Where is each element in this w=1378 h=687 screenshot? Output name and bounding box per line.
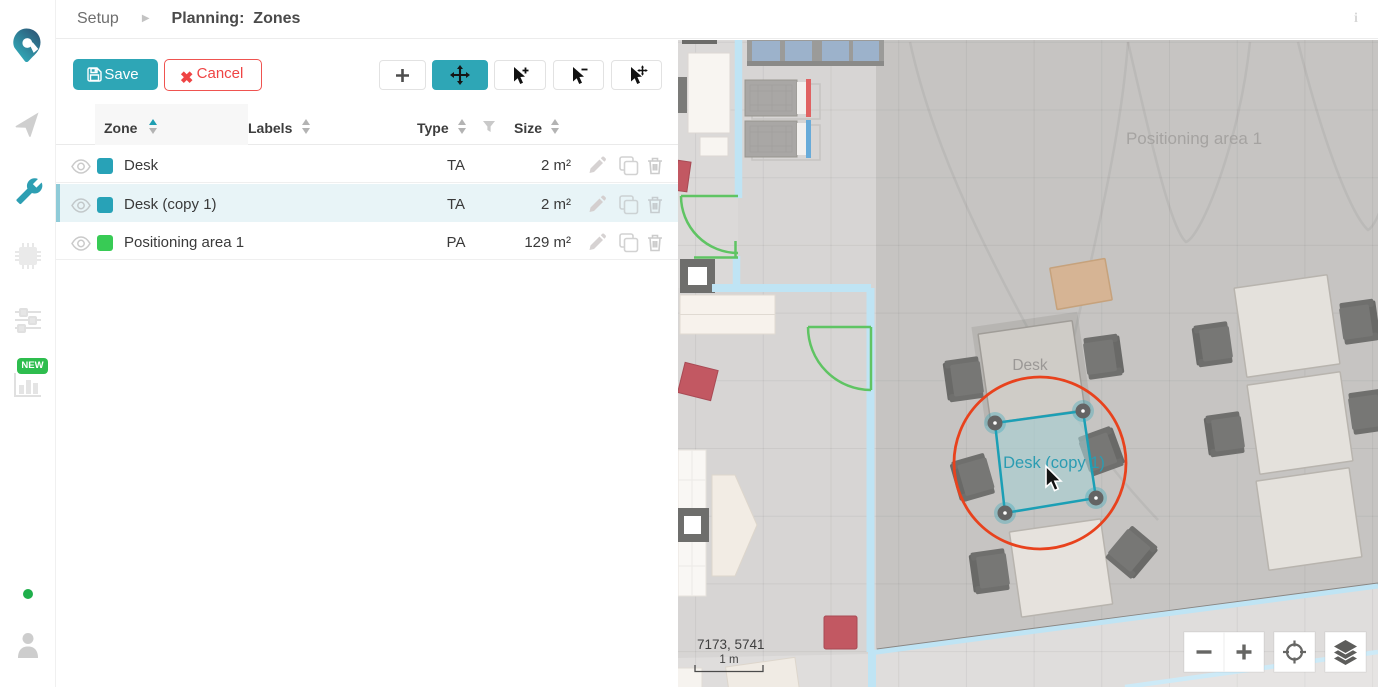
svg-text:Desk: Desk [1012,357,1048,374]
svg-text:7173, 5741: 7173, 5741 [697,637,765,652]
svg-text:Desk (copy 1): Desk (copy 1) [1003,454,1105,472]
svg-text:1 m: 1 m [719,654,738,666]
svg-text:Positioning area 1: Positioning area 1 [1126,129,1262,148]
